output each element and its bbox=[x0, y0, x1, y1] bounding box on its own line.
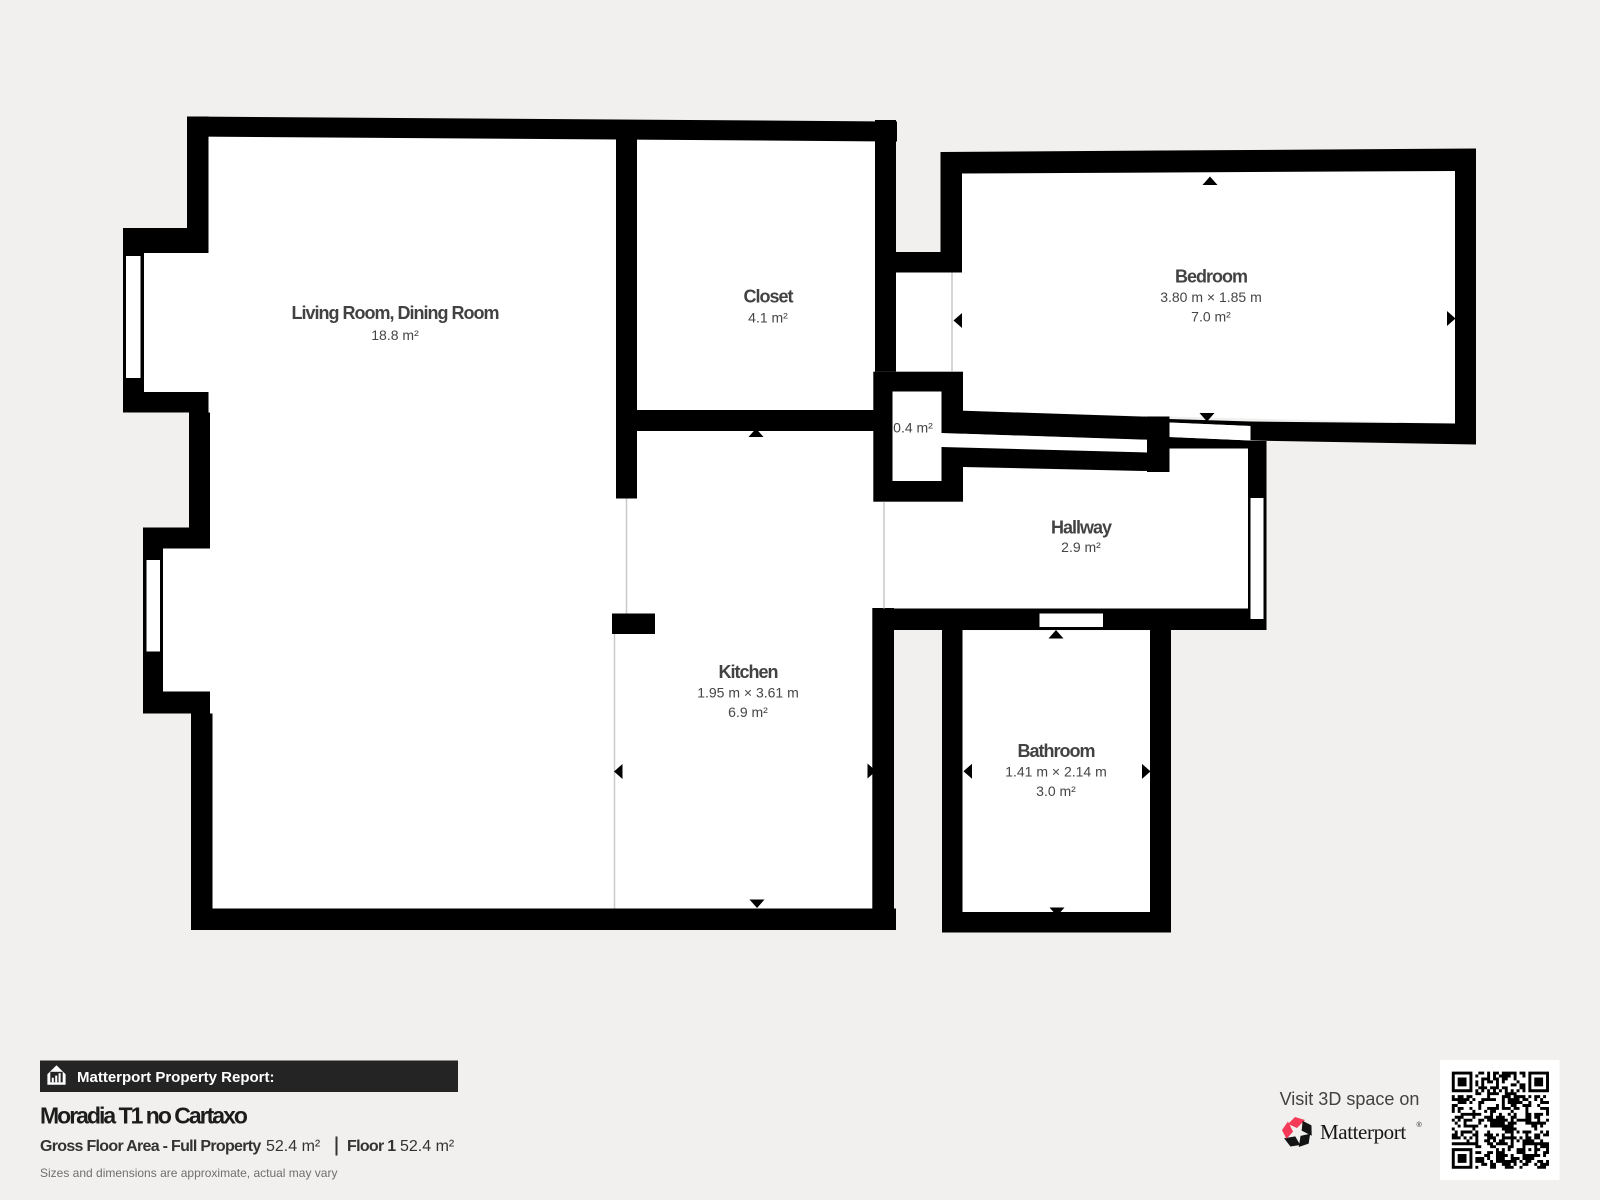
svg-text:Floor 1: Floor 1 bbox=[347, 1138, 396, 1155]
svg-text:Gross Floor Area - Full Proper: Gross Floor Area - Full Property bbox=[40, 1138, 261, 1155]
svg-text:3.80 m × 1.85 m: 3.80 m × 1.85 m bbox=[1160, 289, 1262, 305]
svg-text:Matterport Property Report:: Matterport Property Report: bbox=[77, 1069, 275, 1086]
svg-text:7.0 m²: 7.0 m² bbox=[1191, 309, 1231, 325]
svg-text:3.0 m²: 3.0 m² bbox=[1036, 783, 1076, 799]
svg-text:Hallway: Hallway bbox=[1051, 518, 1112, 538]
svg-text:1.41 m × 2.14 m: 1.41 m × 2.14 m bbox=[1005, 764, 1107, 780]
svg-text:2.9 m²: 2.9 m² bbox=[1061, 539, 1101, 555]
svg-text:Matterport: Matterport bbox=[1320, 1120, 1406, 1144]
svg-text:0.4 m²: 0.4 m² bbox=[893, 420, 933, 436]
svg-text:52.4 m²: 52.4 m² bbox=[266, 1138, 321, 1155]
svg-text:Bathroom: Bathroom bbox=[1018, 741, 1095, 761]
svg-text:Kitchen: Kitchen bbox=[718, 662, 777, 682]
svg-text:®: ® bbox=[1417, 1121, 1423, 1129]
svg-text:52.4 m²: 52.4 m² bbox=[400, 1138, 455, 1155]
svg-text:18.8 m²: 18.8 m² bbox=[371, 327, 419, 343]
svg-text:Bedroom: Bedroom bbox=[1175, 267, 1247, 287]
svg-text:Moradia T1 no Cartaxo: Moradia T1 no Cartaxo bbox=[40, 1103, 248, 1129]
svg-text:Living Room, Dining Room: Living Room, Dining Room bbox=[292, 303, 499, 323]
svg-text:Visit 3D space on: Visit 3D space on bbox=[1280, 1089, 1420, 1109]
svg-text:1.95 m × 3.61 m: 1.95 m × 3.61 m bbox=[697, 685, 799, 701]
svg-text:Sizes and dimensions are appro: Sizes and dimensions are approximate, ac… bbox=[40, 1166, 337, 1180]
svg-text:6.9 m²: 6.9 m² bbox=[728, 704, 768, 720]
svg-text:4.1 m²: 4.1 m² bbox=[748, 310, 788, 326]
svg-text:Closet: Closet bbox=[743, 287, 793, 307]
